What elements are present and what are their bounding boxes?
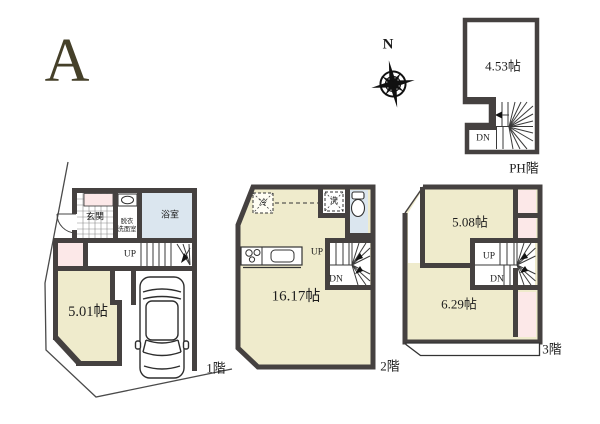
floor2-plan xyxy=(232,182,407,378)
entrance-label: 玄関 xyxy=(86,213,104,222)
kitchen-counter-icon xyxy=(241,247,302,268)
washstand-icon xyxy=(118,194,137,206)
closet-pink-2 xyxy=(518,218,536,238)
washer-label: 洗 xyxy=(330,197,338,205)
floor2-room-size: 16.17帖 xyxy=(272,290,321,305)
floor2-stairs-down-label: DN xyxy=(329,275,343,285)
floor1-label: 1階 xyxy=(206,362,226,375)
floor3-stairs-down-label: DN xyxy=(490,275,504,285)
toilet-icon xyxy=(352,192,365,217)
ph-stairs-down-label: DN xyxy=(476,134,490,144)
stairs-up-icon xyxy=(141,243,190,266)
balcony-outline xyxy=(406,343,540,356)
ph-floor-plan xyxy=(458,14,550,164)
ph-outline xyxy=(465,20,537,152)
floor3-plan xyxy=(400,182,550,360)
closet-pink-1 xyxy=(518,190,536,213)
floor2-stairs-up-label: UP xyxy=(311,248,323,258)
floor1-room-size: 5.01帖 xyxy=(68,305,108,320)
floor3-room-a-size: 5.08帖 xyxy=(452,216,488,229)
closet-pink-3 xyxy=(518,292,536,337)
floorplan-sheet: A N 4.53帖 DN PH階 玄関 脱衣 洗面室 浴室 UP 5.01帖 1… xyxy=(0,0,600,424)
floor3-room-b-size: 6.29帖 xyxy=(441,298,477,311)
bathroom-label: 浴室 xyxy=(161,211,179,220)
plan-letter: A xyxy=(45,30,90,92)
compass-north-label: N xyxy=(383,38,394,53)
ph-floor-label: PH階 xyxy=(509,162,539,175)
refrigerator-label: 冷 xyxy=(259,199,267,207)
floor3-stairs-up-label: UP xyxy=(483,252,495,262)
storage-pink xyxy=(58,243,83,266)
ph-walls xyxy=(465,97,496,130)
entrance-closet xyxy=(84,194,113,207)
floor3-label: 3階 xyxy=(542,343,562,356)
floor1-stairs-up-label: UP xyxy=(124,250,136,260)
floor2-label: 2階 xyxy=(380,360,400,373)
dressing-room-label-1: 脱衣 xyxy=(121,219,134,225)
car-icon xyxy=(136,277,189,378)
ph-room-size: 4.53帖 xyxy=(485,60,521,73)
dressing-room-label-2: 洗面室 xyxy=(118,227,137,233)
